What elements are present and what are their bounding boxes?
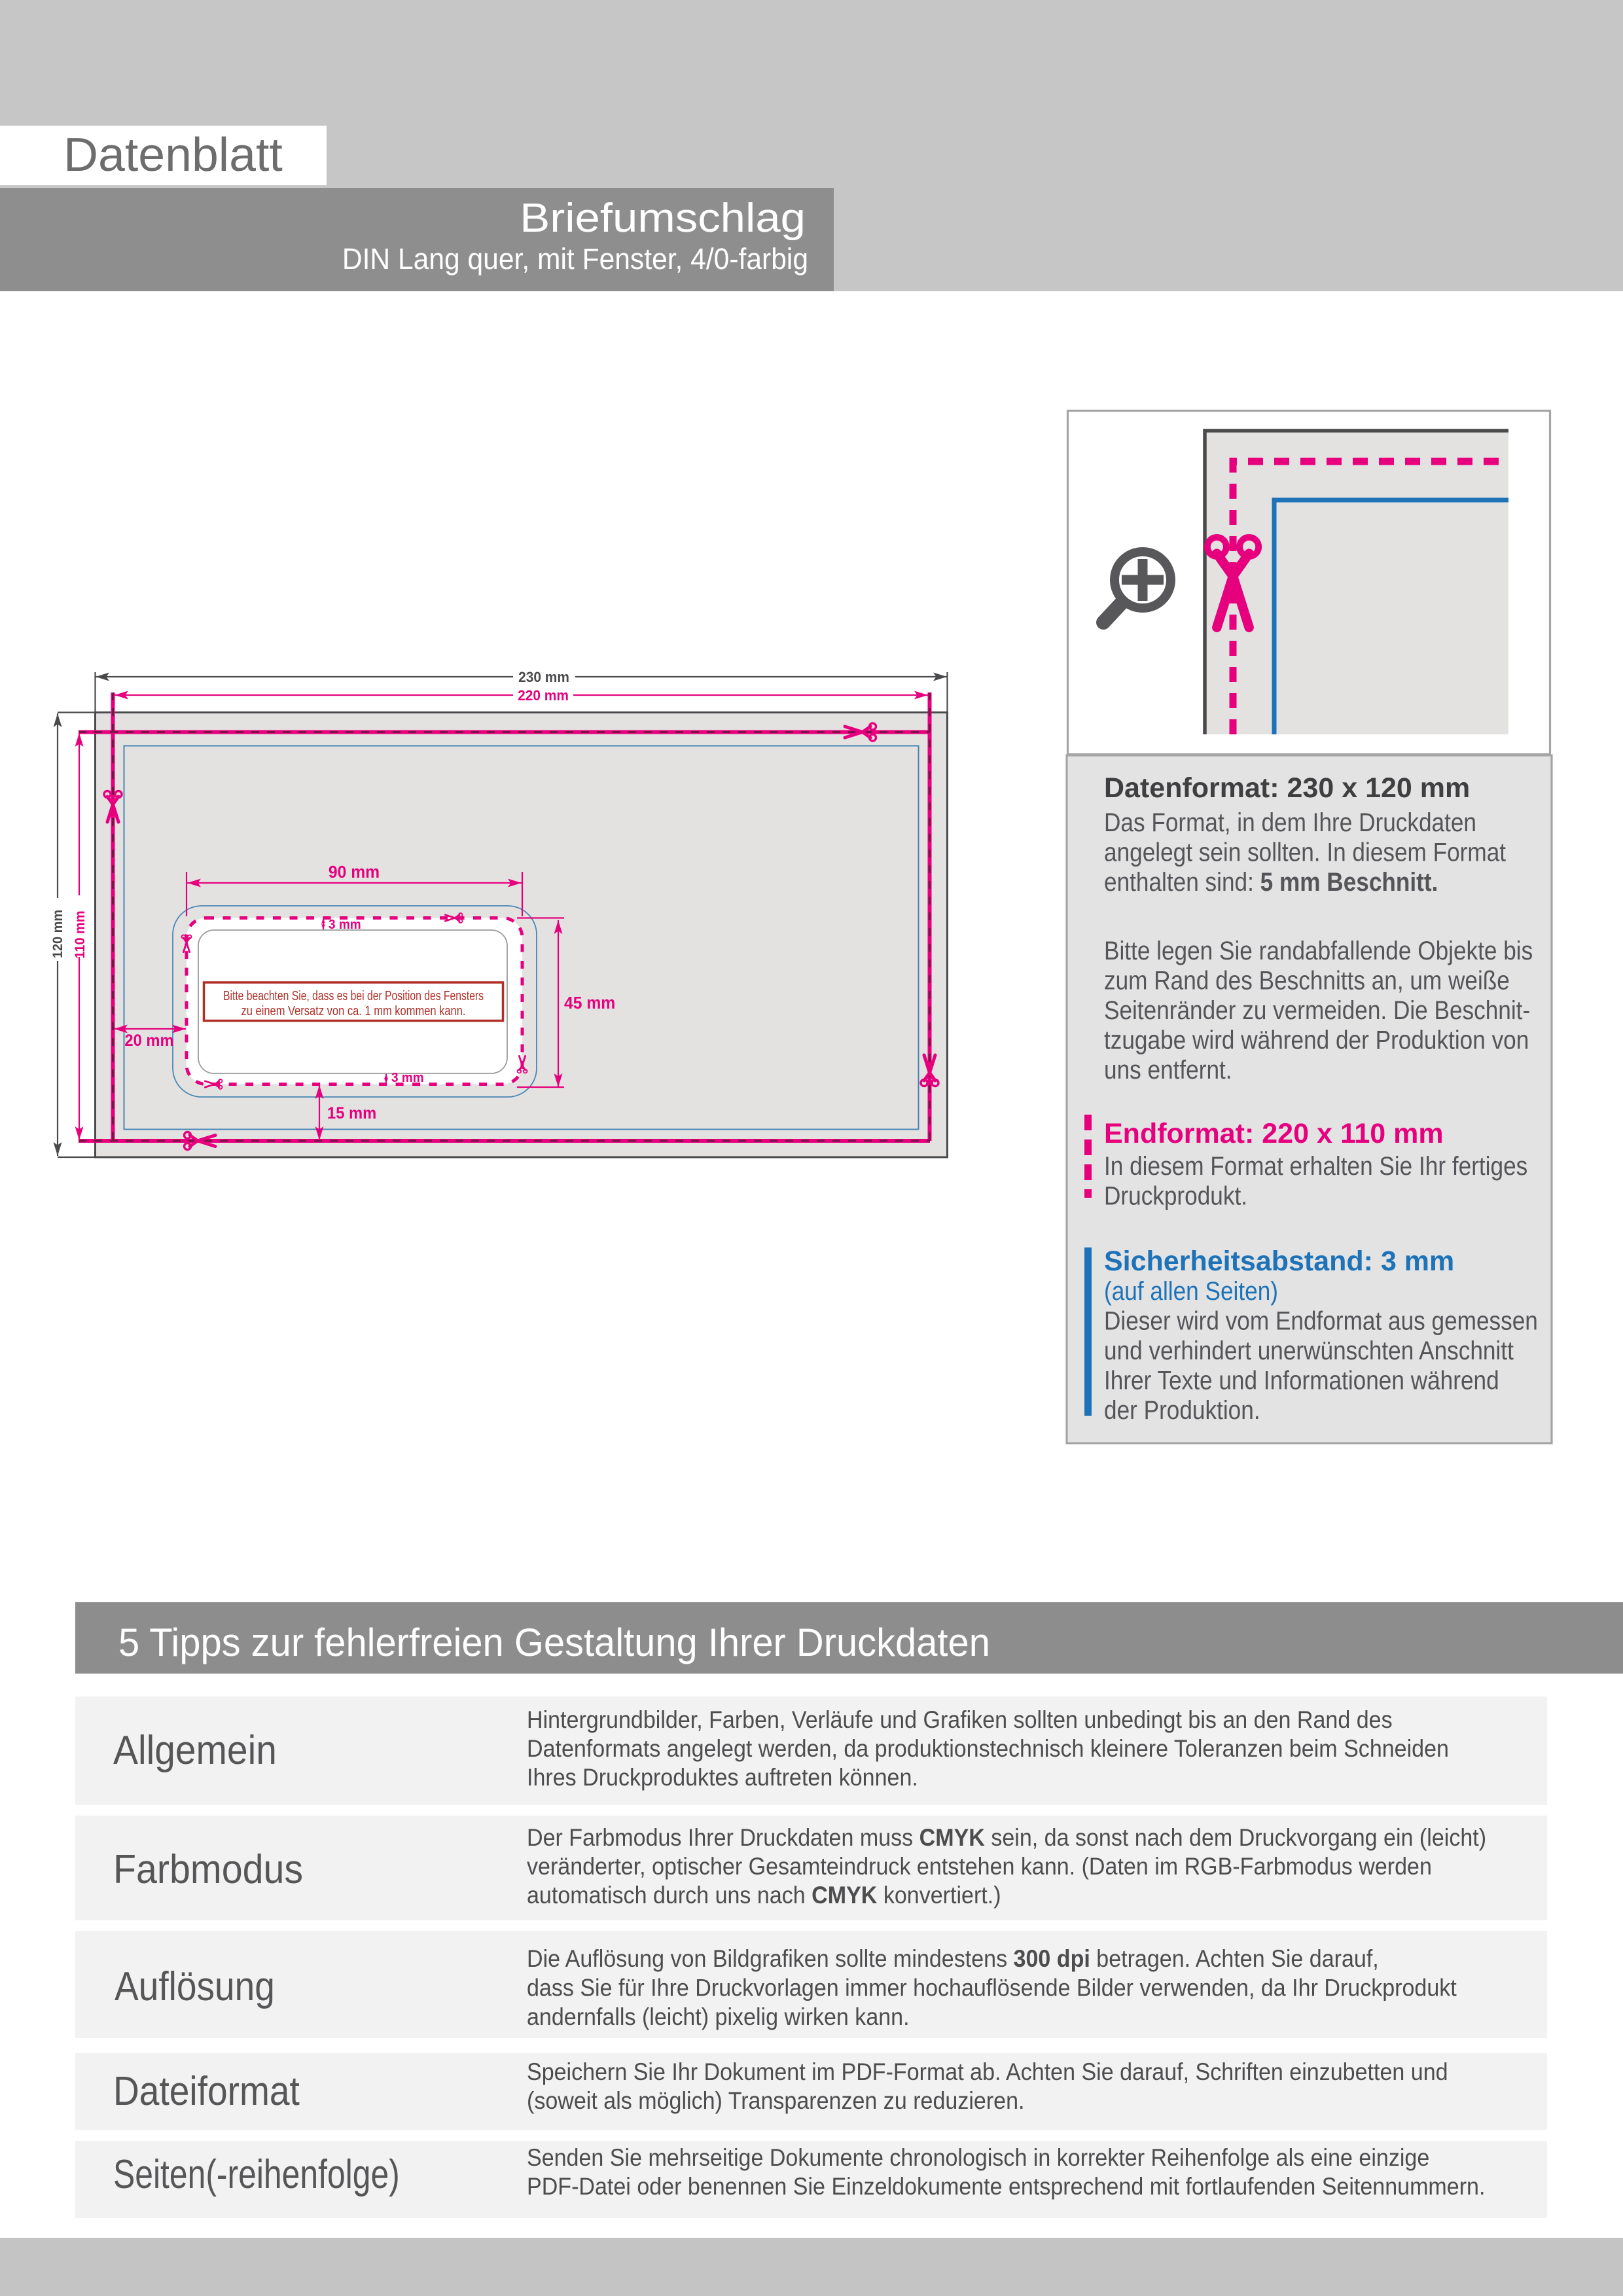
svg-text:5 Tipps zur fehlerfreien Gesta: 5 Tipps zur fehlerfreien Gestaltung Ihre… [118, 1621, 990, 1664]
svg-text:(soweit als möglich) Transpare: (soweit als möglich) Transparenzen zu re… [527, 2087, 1025, 2115]
svg-text:PDF-Datei oder benennen Sie Ei: PDF-Datei oder benennen Sie Einzeldokume… [527, 2173, 1485, 2200]
svg-text:Dateiformat: Dateiformat [113, 2069, 300, 2114]
svg-text:45 mm: 45 mm [564, 994, 615, 1013]
svg-text:Die Auflösung von Bildgrafiken: Die Auflösung von Bildgrafiken sollte mi… [527, 1945, 1379, 1973]
svg-text:angelegt sein sollten. In dies: angelegt sein sollten. In diesem Format [1104, 837, 1507, 867]
svg-text:veränderter, optischer Gesamte: veränderter, optischer Gesamteindruck en… [527, 1853, 1432, 1880]
svg-text:Sicherheitsabstand: 3 mm: Sicherheitsabstand: 3 mm [1104, 1246, 1454, 1277]
svg-text:20 mm: 20 mm [124, 1031, 173, 1050]
svg-text:Bitte beachten Sie, dass es be: Bitte beachten Sie, dass es bei der Posi… [223, 989, 484, 1003]
svg-text:Senden Sie mehrseitige Dokumen: Senden Sie mehrseitige Dokumente chronol… [527, 2144, 1429, 2172]
svg-text:(auf allen Seiten): (auf allen Seiten) [1104, 1276, 1278, 1306]
svg-text:Datenblatt: Datenblatt [63, 129, 283, 181]
svg-text:Bitte legen Sie randabfallende: Bitte legen Sie randabfallende Objekte b… [1104, 936, 1533, 965]
svg-text:Hintergrundbilder, Farben, Ver: Hintergrundbilder, Farben, Verläufe und … [527, 1706, 1393, 1734]
svg-text:Briefumschlag: Briefumschlag [520, 195, 806, 240]
svg-text:In diesem Format erhalten Sie: In diesem Format erhalten Sie Ihr fertig… [1104, 1151, 1527, 1181]
svg-text:und verhindert unerwünschten A: und verhindert unerwünschten Anschnitt [1104, 1336, 1514, 1365]
svg-text:Seiten(-reihenfolge): Seiten(-reihenfolge) [113, 2151, 400, 2197]
svg-text:Der Farbmodus Ihrer Druckdaten: Der Farbmodus Ihrer Druckdaten muss CMYK… [527, 1824, 1486, 1852]
svg-text:Ihrer Texte und Informationen: Ihrer Texte und Informationen während [1104, 1365, 1499, 1395]
svg-text:Ihres Druckproduktes auftreten: Ihres Druckproduktes auftreten können. [527, 1764, 918, 1791]
svg-text:enthalten sind: 5 mm Beschnitt: enthalten sind: 5 mm Beschnitt. [1104, 867, 1438, 897]
svg-text:tzugabe wird während der Produ: tzugabe wird während der Produktion von [1104, 1025, 1529, 1054]
svg-text:15 mm: 15 mm [327, 1104, 376, 1122]
svg-text:DIN Lang quer, mit Fenster, 4/: DIN Lang quer, mit Fenster, 4/0-farbig [342, 243, 808, 276]
svg-text:110 mm: 110 mm [73, 910, 88, 958]
svg-text:Farbmodus: Farbmodus [113, 1846, 303, 1892]
svg-text:Druckprodukt.: Druckprodukt. [1104, 1181, 1247, 1210]
svg-text:Endformat: 220 x 110 mm: Endformat: 220 x 110 mm [1104, 1118, 1444, 1149]
svg-text:220 mm: 220 mm [518, 688, 569, 704]
svg-text:Allgemein: Allgemein [113, 1727, 277, 1773]
svg-text:Das Format, in dem Ihre Druckd: Das Format, in dem Ihre Druckdaten [1104, 808, 1476, 837]
svg-text:uns entfernt.: uns entfernt. [1104, 1055, 1232, 1085]
svg-text:Datenformat: 230 x 120 mm: Datenformat: 230 x 120 mm [1104, 772, 1470, 804]
svg-text:3 mm: 3 mm [391, 1071, 424, 1086]
svg-text:Auflösung: Auflösung [115, 1964, 275, 2009]
svg-text:3 mm: 3 mm [329, 918, 361, 933]
svg-text:andernfalls (leicht) pixelig w: andernfalls (leicht) pixelig wirken kann… [527, 2003, 910, 2031]
svg-text:Dieser wird vom Endformat aus: Dieser wird vom Endformat aus gemessen [1104, 1306, 1538, 1335]
svg-text:120 mm: 120 mm [50, 910, 66, 958]
svg-text:zum Rand des Beschnitts an, um: zum Rand des Beschnitts an, um weiße [1104, 965, 1510, 995]
svg-text:230 mm: 230 mm [518, 670, 569, 686]
svg-text:der Produktion.: der Produktion. [1104, 1395, 1260, 1425]
svg-text:automatisch durch uns nach CMY: automatisch durch uns nach CMYK konverti… [527, 1882, 1001, 1909]
svg-text:zu einem Versatz von ca. 1 mm: zu einem Versatz von ca. 1 mm kommen kan… [241, 1004, 466, 1018]
svg-text:dass Sie für Ihre Druckvorlage: dass Sie für Ihre Druckvorlagen immer ho… [527, 1974, 1457, 2001]
svg-text:Datenformats angelegt werden,: Datenformats angelegt werden, da produkt… [527, 1735, 1449, 1763]
svg-text:Speichern Sie Ihr Dokument im: Speichern Sie Ihr Dokument im PDF-Format… [527, 2058, 1448, 2086]
svg-text:Seitenränder zu vermeiden. Die: Seitenränder zu vermeiden. Die Beschnit- [1104, 996, 1530, 1025]
svg-text:90 mm: 90 mm [329, 863, 380, 882]
